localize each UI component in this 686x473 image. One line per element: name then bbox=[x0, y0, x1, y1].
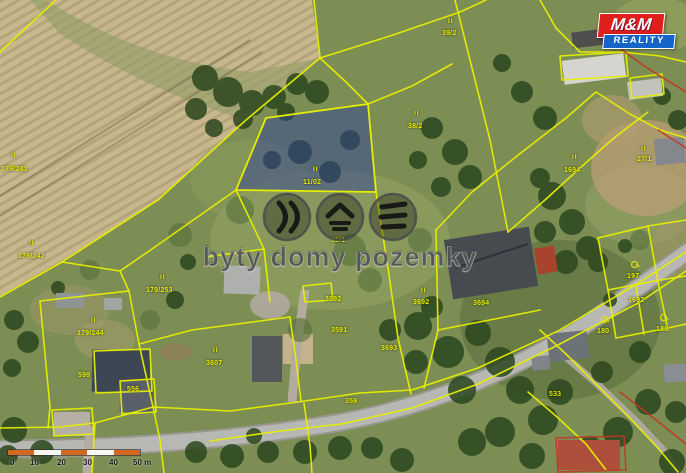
logo-reality-text: REALITY bbox=[602, 34, 676, 49]
scale-bar-tick: 40 bbox=[109, 458, 118, 467]
cadastral-map-view[interactable]: II179/241II179/242II39/2II38/2II11/02II3… bbox=[0, 0, 686, 473]
scale-bar-tick: 10 bbox=[30, 458, 39, 467]
scale-bar-tick: 20 bbox=[57, 458, 66, 467]
scale-bar-segments bbox=[7, 449, 141, 456]
parcel-lines bbox=[0, 0, 686, 473]
scale-bar-tick: 30 bbox=[83, 458, 92, 467]
highlighted-parcel[interactable] bbox=[236, 104, 376, 192]
scale-bar-segment bbox=[87, 450, 113, 455]
secondary-parcel-lines bbox=[556, 38, 686, 472]
scale-bar-segment bbox=[114, 450, 140, 455]
parcel-boundaries-layer bbox=[0, 0, 686, 473]
scale-bar-tick: 0 bbox=[10, 458, 14, 467]
scale-bar-ticks: 01020304050 m bbox=[6, 458, 156, 468]
scale-bar-segment bbox=[8, 450, 34, 455]
map-scale-bar: 01020304050 m bbox=[6, 447, 156, 471]
scale-bar-segment bbox=[34, 450, 60, 455]
scale-bar-tick: 50 m bbox=[133, 458, 151, 467]
scale-bar-segment bbox=[61, 450, 87, 455]
